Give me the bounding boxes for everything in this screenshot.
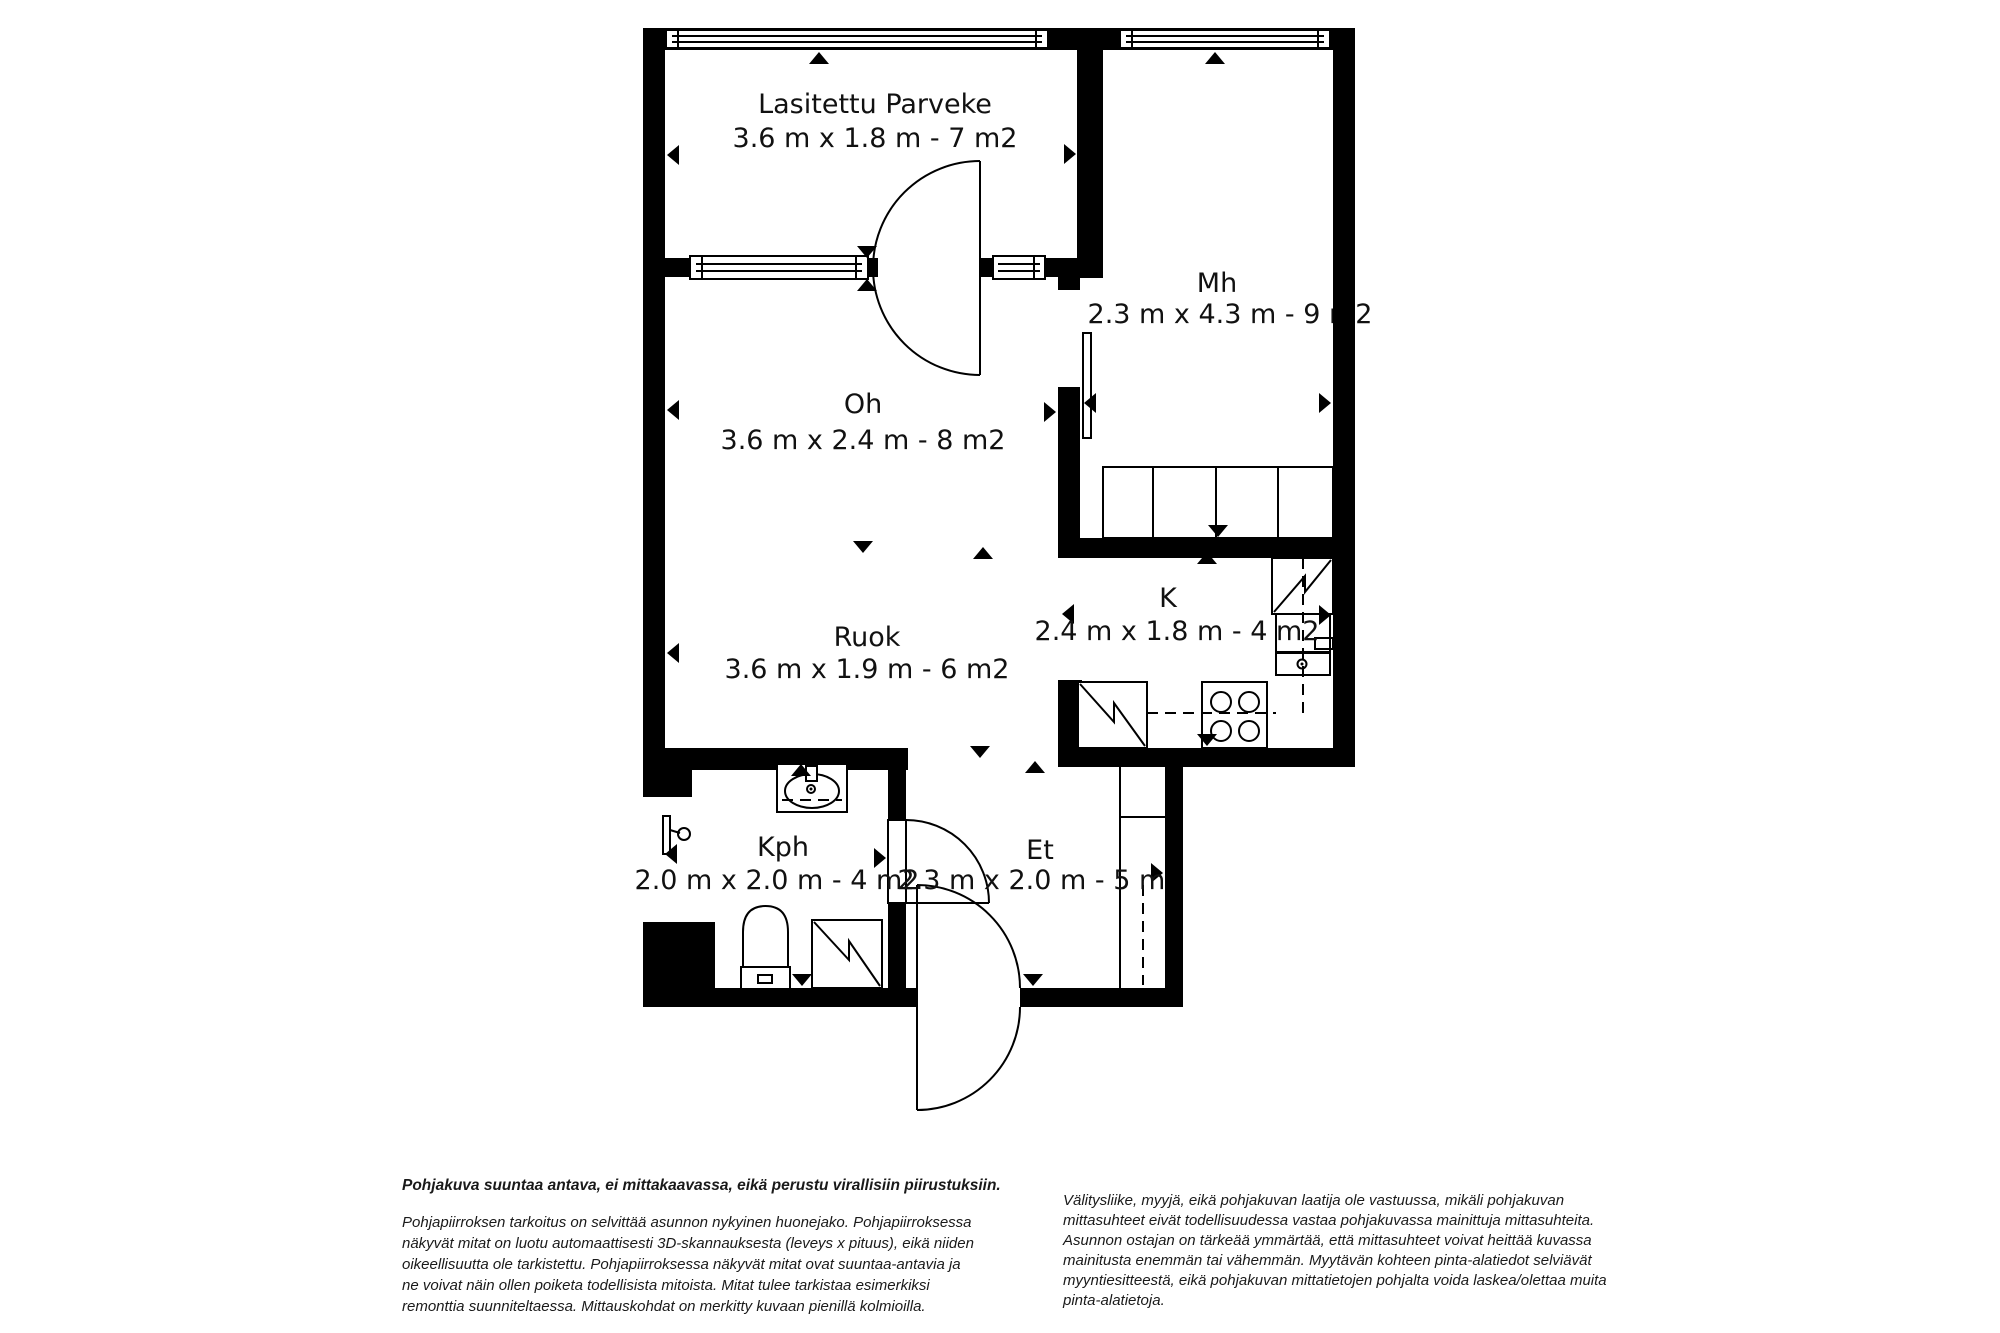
disclaimer-right-line-5: myyntiesitteestä, eikä pohjakuvan mittat… (1063, 1271, 1607, 1291)
disclaimer-left-line-3: oikeellisuutta ole tarkistettu. Pohjapii… (402, 1254, 1001, 1275)
room-label-oh: Oh (844, 389, 882, 420)
disclaimer-right-line-3: Asunnon ostajan on tärkeää ymmärtää, ett… (1063, 1231, 1607, 1251)
disclaimer-right-line-2: mittasuhteet eivät todellisuudessa vasta… (1063, 1211, 1607, 1231)
disclaimer-right: Välitysliike, myyjä, eikä pohjakuvan laa… (1063, 1191, 1607, 1311)
disclaimer-left-line-2: näkyvät mitat on luotu automaattisesti 3… (402, 1233, 1001, 1254)
disclaimer-right-line-4: mainitusta enemmän tai vähemmän. Myytävä… (1063, 1251, 1607, 1271)
entrance-door-icon (917, 885, 1020, 1110)
walls (643, 28, 1355, 1007)
room-dims-oh: 3.6 m x 2.4 m - 8 m2 (721, 425, 1006, 456)
room-dims-kph: 2.0 m x 2.0 m - 4 m2 (635, 865, 920, 896)
balcony-door-icon (873, 161, 980, 375)
wall-overlays (643, 28, 1355, 1007)
disclaimer-left: Pohjakuva suuntaa antava, ei mittakaavas… (402, 1175, 1001, 1317)
floor-plan-page: Lasitettu Parveke 3.6 m x 1.8 m - 7 m2 M… (0, 0, 2000, 1333)
window-icon-balcony-oh-right (993, 256, 1045, 279)
disclaimer-left-line-4: ne voivat näin ollen poiketa todellisist… (402, 1275, 1001, 1296)
room-label-parveke: Lasitettu Parveke (758, 89, 992, 120)
window-icon-mh-top (1120, 30, 1330, 48)
disclaimer-left-line-5: remonttia suunniteltaessa. Mittauskohdat… (402, 1296, 1001, 1317)
room-dims-k: 2.4 m x 1.8 m - 4 m2 (1035, 616, 1320, 647)
room-dims-et: 2.3 m x 2.0 m - 5 m2 (898, 865, 1183, 896)
room-label-k: K (1159, 583, 1178, 614)
mh-sliding-door-icon (1083, 333, 1091, 438)
dishwasher-icon (1078, 682, 1147, 748)
room-dims-mh: 2.3 m x 4.3 m - 9 m2 (1088, 299, 1373, 330)
room-labels: Lasitettu Parveke 3.6 m x 1.8 m - 7 m2 M… (635, 89, 1373, 896)
washing-machine-icon (812, 920, 882, 988)
room-label-ruok: Ruok (834, 622, 901, 653)
room-label-et: Et (1026, 835, 1054, 866)
room-dims-parveke: 3.6 m x 1.8 m - 7 m2 (733, 123, 1018, 154)
room-label-kph: Kph (757, 832, 809, 863)
room-dims-ruok: 3.6 m x 1.9 m - 6 m2 (725, 654, 1010, 685)
disclaimer-left-line-1: Pohjapiirroksen tarkoitus on selvittää a… (402, 1212, 1001, 1233)
window-icon-balcony-oh-left (690, 256, 868, 279)
disclaimer-title: Pohjakuva suuntaa antava, ei mittakaavas… (402, 1175, 1001, 1196)
disclaimer-right-line-1: Välitysliike, myyjä, eikä pohjakuvan laa… (1063, 1191, 1607, 1211)
room-label-mh: Mh (1197, 268, 1237, 299)
bathroom-sink-icon (777, 764, 847, 812)
toilet-icon (741, 906, 790, 989)
window-icon-balcony-top (666, 30, 1048, 48)
floor-plan-drawing: Lasitettu Parveke 3.6 m x 1.8 m - 7 m2 M… (0, 0, 2000, 1333)
disclaimer-right-line-6: pinta-alatietoja. (1063, 1291, 1607, 1311)
